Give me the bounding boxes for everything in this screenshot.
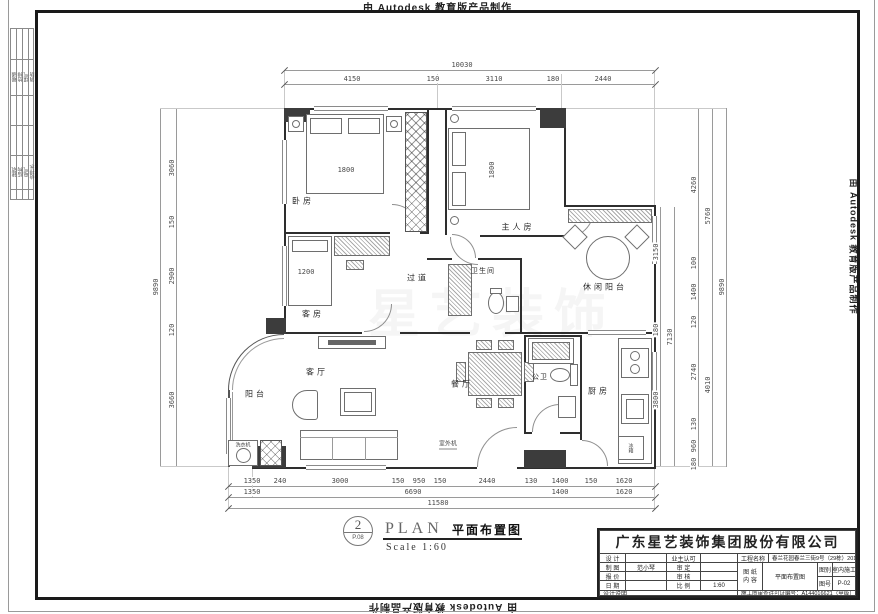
wall-segment (480, 235, 566, 237)
dim-label: 1400 (551, 488, 570, 496)
dim-label: 960 (690, 439, 698, 454)
wall-segment (524, 335, 582, 337)
dim-total-top: 10030 (450, 61, 473, 69)
dim-line (284, 84, 655, 85)
dim-label: 180 (690, 457, 698, 472)
room-label-balcony: 阳台 (245, 389, 267, 400)
dim-label: 2440 (478, 477, 497, 485)
dim-extension (561, 74, 562, 108)
plan-title-cn: 平面布置图 (452, 521, 522, 538)
door-swing (582, 440, 608, 466)
room-label-living: 客厅 (306, 367, 328, 378)
dim-label: 1350 (243, 477, 262, 485)
dim-label: 150 (426, 75, 441, 83)
signoff-discipline: 消防 (29, 72, 36, 82)
dim-extension (284, 70, 285, 108)
balcony-rail-arc (232, 338, 284, 390)
tv (328, 340, 376, 345)
dim-label: 4150 (343, 75, 362, 83)
dim-line (712, 108, 713, 467)
dining-chair (498, 398, 514, 408)
ac-unit-label: 室外机 (439, 439, 457, 450)
drawing-number-value: P-02 (832, 576, 856, 591)
stool (346, 260, 364, 270)
balcony-cabinet (260, 440, 282, 466)
sheet-content-label-1: 图 纸 (743, 569, 757, 577)
dim-label: 150 (584, 477, 599, 485)
dim-label: 4260 (690, 176, 698, 195)
lamp-icon (390, 120, 398, 128)
wall-segment (400, 332, 470, 334)
coffee-table-inner (344, 392, 372, 412)
dim-label: 150 (391, 477, 406, 485)
dim-label: 6690 (404, 488, 423, 496)
dim-extension (654, 70, 655, 205)
wall-segment (427, 258, 452, 260)
frame-right (857, 10, 860, 600)
pillow (452, 172, 466, 206)
pillow (348, 118, 380, 134)
wall-segment (580, 335, 582, 440)
pillow (452, 132, 466, 166)
dim-total-right: 9890 (718, 278, 726, 297)
drawing-sheet: 由 Autodesk 教育版产品制作 由 Autodesk 教育版产品制作 由 … (0, 0, 878, 614)
shower (448, 264, 472, 316)
wall-segment (524, 335, 526, 432)
dim-label: 150 (168, 215, 176, 230)
dim-label: 100 (690, 256, 698, 271)
dim-label: 1200 (297, 268, 316, 276)
sofa-cushion-line (332, 437, 333, 460)
dim-line (726, 108, 727, 467)
dim-line (160, 108, 161, 467)
plan-title-underline (383, 538, 522, 540)
dim-label: 5760 (704, 207, 712, 226)
window (588, 330, 646, 335)
structural-column (266, 318, 286, 334)
wall-segment (284, 332, 362, 334)
dim-label: 1400 (690, 283, 698, 302)
wall-segment (284, 232, 390, 234)
armchair (292, 390, 318, 420)
drawing-type-label: 图别 (817, 562, 833, 577)
room-label-bedroom: 卧房 (292, 196, 314, 207)
window (282, 140, 287, 204)
lamp-icon (292, 120, 300, 128)
lamp-icon (450, 216, 459, 225)
dim-line (698, 108, 699, 467)
dim-line (228, 497, 655, 498)
dim-label: 1620 (615, 488, 634, 496)
company-name: 广东星艺装饰集团股份有限公司 (599, 530, 856, 554)
detail-bubble: 2 P.08 (343, 516, 373, 546)
dim-label: 180 (546, 75, 561, 83)
fridge-label: 冰箱 (628, 443, 635, 453)
dim-label: 130 (524, 477, 539, 485)
pillow (292, 240, 328, 252)
round-table (586, 236, 630, 280)
dim-extension (566, 108, 726, 109)
wall-segment (478, 258, 522, 260)
dim-label: 3660 (168, 391, 176, 410)
burner-icon (630, 351, 640, 361)
entry-door-swing (477, 427, 517, 467)
dim-line (228, 508, 655, 509)
dim-line (674, 207, 675, 467)
dim-label: 2900 (168, 267, 176, 286)
wall-segment (560, 432, 582, 434)
dim-label: 2440 (594, 75, 613, 83)
lamp-icon (450, 114, 459, 123)
toilet (550, 368, 570, 382)
title-block: 广东星艺装饰集团股份有限公司 设 计 业主认可 制 图 范小琴 审 定 报 价 … (597, 528, 858, 598)
dim-line (660, 207, 661, 467)
wall-segment (445, 108, 447, 235)
wall-segment (505, 332, 566, 334)
sofa (300, 430, 398, 460)
dim-label: 130 (690, 417, 698, 432)
autodesk-banner-bottom: 由 Autodesk 教育版产品制作 (368, 601, 517, 614)
dim-label: 3060 (168, 159, 176, 178)
room-label-kitchen: 厨房 (588, 386, 610, 397)
dim-label: 3800 (652, 391, 660, 410)
burner-icon (630, 364, 640, 374)
dim-label: 240 (273, 477, 288, 485)
sheet-content-value: 平面布置图 (762, 562, 818, 591)
dim-label: 3150 (652, 243, 660, 262)
dim-label: 3110 (485, 75, 504, 83)
frame-left (35, 10, 38, 600)
dim-line (284, 70, 655, 71)
structural-column (524, 450, 566, 468)
sheet-edge-bottom (8, 611, 875, 612)
dim-label: 120 (168, 323, 176, 338)
frame-top (35, 10, 860, 13)
plan-scale: Scale 1:60 (386, 542, 448, 553)
room-label-public-wc: 公卫 (532, 372, 548, 382)
dim-label: 180 (652, 323, 660, 338)
dining-chair (476, 340, 492, 350)
room-label-bathroom: 卫生间 (471, 266, 495, 276)
dim-line (176, 108, 177, 467)
window (282, 246, 287, 306)
dim-label: 950 (412, 477, 427, 485)
dim-label: 1800 (337, 166, 356, 174)
desk (334, 236, 390, 256)
wall-segment (566, 205, 656, 207)
room-label-master: 主人房 (502, 222, 535, 233)
drawing-type-value: 室内施工 (832, 562, 856, 577)
wall-segment (524, 432, 532, 434)
wall-segment (427, 108, 429, 232)
balcony-cabinet (568, 209, 652, 223)
sheet-edge-right (874, 0, 875, 612)
sofa-back-line (300, 437, 398, 438)
sheet-content-label: 图 纸 内 容 (737, 562, 763, 591)
dim-label: 3000 (331, 477, 350, 485)
sheet-edge-left (8, 0, 9, 612)
sheet-content-label-2: 内 容 (743, 577, 757, 585)
detail-bubble-number: 2 (344, 517, 372, 533)
toilet (488, 292, 504, 314)
signoff-discipline: 给排水 (29, 165, 36, 180)
dim-label: 1400 (551, 477, 570, 485)
sofa-cushion-line (365, 437, 366, 460)
dim-label: 150 (433, 477, 448, 485)
dim-extension (160, 466, 228, 467)
room-label-leisure-balcony: 休闲阳台 (583, 282, 627, 293)
dim-label: 2740 (690, 363, 698, 382)
dining-chair (498, 340, 514, 350)
pillow (310, 118, 342, 134)
door-swing (532, 404, 560, 432)
detail-bubble-sheet: P.08 (344, 533, 372, 543)
sink (506, 296, 519, 312)
room-label-dining: 餐厅 (451, 379, 473, 390)
wall-segment (520, 258, 522, 334)
kitchen-sink-basin (626, 399, 644, 419)
dim-label: 1800 (488, 161, 496, 180)
window (306, 465, 386, 470)
washer-drum-icon (236, 448, 251, 463)
dim-label: 120 (690, 315, 698, 330)
wardrobe (405, 112, 427, 232)
design-note-label: 设计说明 (599, 590, 738, 596)
dim-total-bottom: 11580 (426, 499, 449, 507)
dim-label: 1350 (243, 488, 262, 496)
window (314, 106, 388, 111)
dining-table (468, 352, 522, 396)
signoff-table: 暖通 给排 煤气 消防 建筑 结构 电气 给排水 (10, 28, 34, 200)
drawing-number-label: 图号 (817, 576, 833, 591)
wall-segment (420, 232, 429, 234)
room-label-guest: 客房 (302, 309, 324, 320)
toilet-tank (570, 364, 578, 386)
bathtub-inner (532, 342, 570, 360)
permit-number: 施工图审查许可证编号：A144016621（甲级） (737, 590, 856, 596)
dim-line (228, 486, 655, 487)
lounge-chair (624, 224, 649, 249)
plan-title-en: PLAN (385, 520, 443, 538)
dim-label: 4010 (704, 376, 712, 395)
structural-column (540, 108, 566, 128)
window (452, 106, 536, 111)
dim-label: 1620 (615, 477, 634, 485)
room-label-corridor: 过道 (407, 273, 429, 284)
toilet-tank (490, 288, 502, 294)
dim-extension (160, 108, 284, 109)
dim-total-left: 9890 (152, 278, 160, 297)
sink (558, 396, 576, 418)
dim-label: 7130 (666, 328, 674, 347)
dining-chair (476, 398, 492, 408)
washer-label: 洗衣机 (235, 442, 250, 449)
